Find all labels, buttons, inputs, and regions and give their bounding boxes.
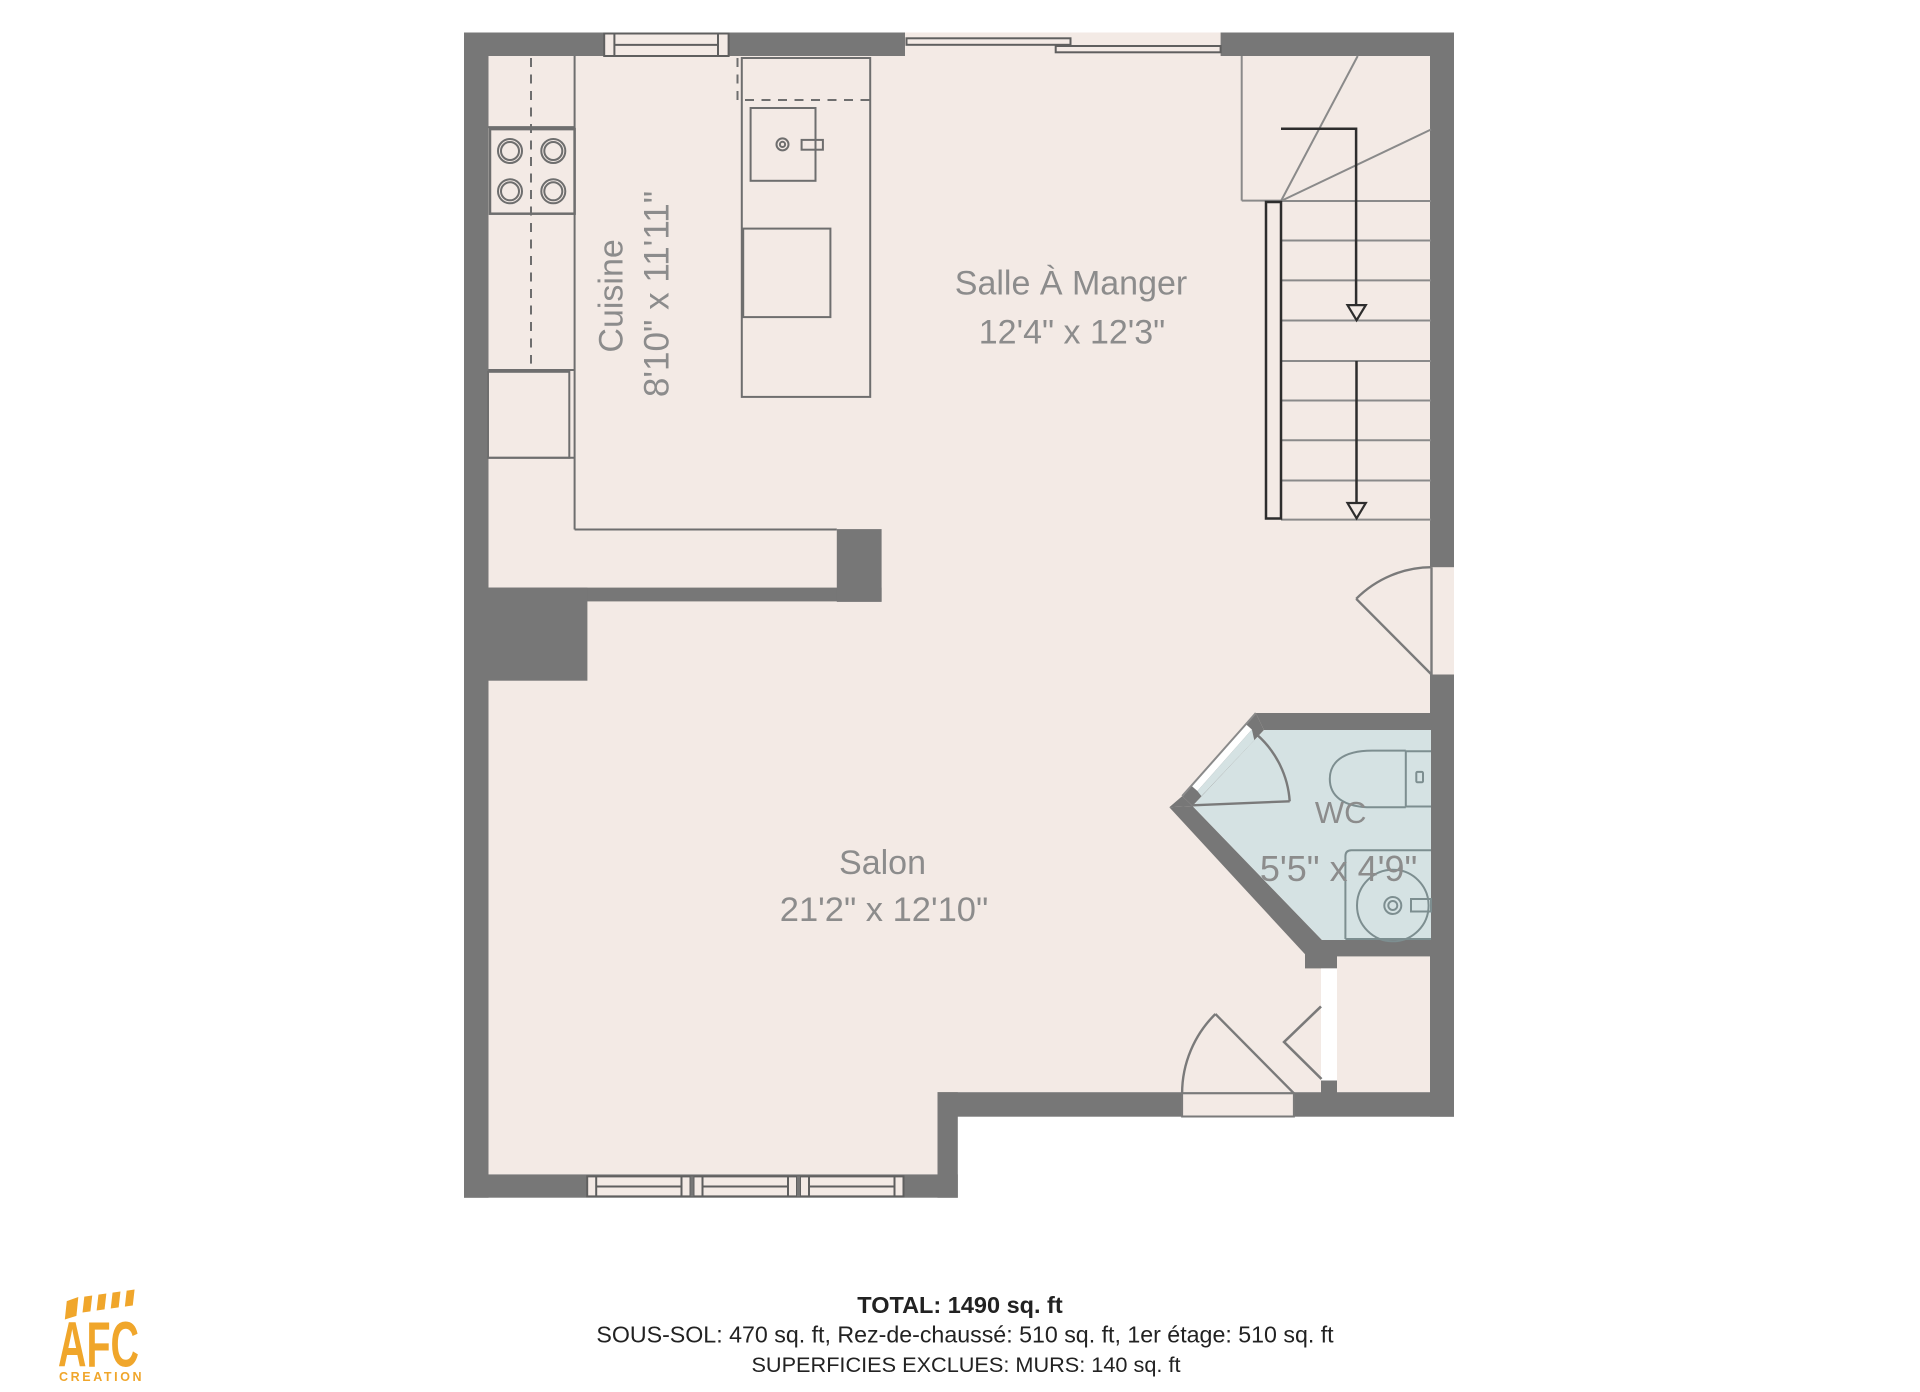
svg-text:SUPERFICIES EXCLUES: MURS: 140: SUPERFICIES EXCLUES: MURS: 140 sq. ft (751, 1352, 1180, 1377)
svg-text:TOTAL: 1490 sq. ft: TOTAL: 1490 sq. ft (857, 1292, 1063, 1318)
svg-text:Salon: Salon (839, 844, 926, 882)
svg-text:WC: WC (1315, 795, 1367, 830)
svg-text:Salle À Manger: Salle À Manger (955, 265, 1187, 303)
svg-text:5'5" x 4'9": 5'5" x 4'9" (1260, 848, 1417, 889)
svg-text:21'2" x 12'10": 21'2" x 12'10" (780, 891, 988, 929)
svg-text:Cuisine: Cuisine (592, 239, 630, 352)
svg-text:SOUS-SOL: 470 sq. ft, Rez-de-c: SOUS-SOL: 470 sq. ft, Rez-de-chaussé: 51… (596, 1322, 1334, 1348)
svg-text:8'10" x 11'11": 8'10" x 11'11" (638, 191, 677, 397)
svg-text:CREATION: CREATION (59, 1370, 144, 1384)
svg-text:12'4" x 12'3": 12'4" x 12'3" (979, 314, 1165, 352)
